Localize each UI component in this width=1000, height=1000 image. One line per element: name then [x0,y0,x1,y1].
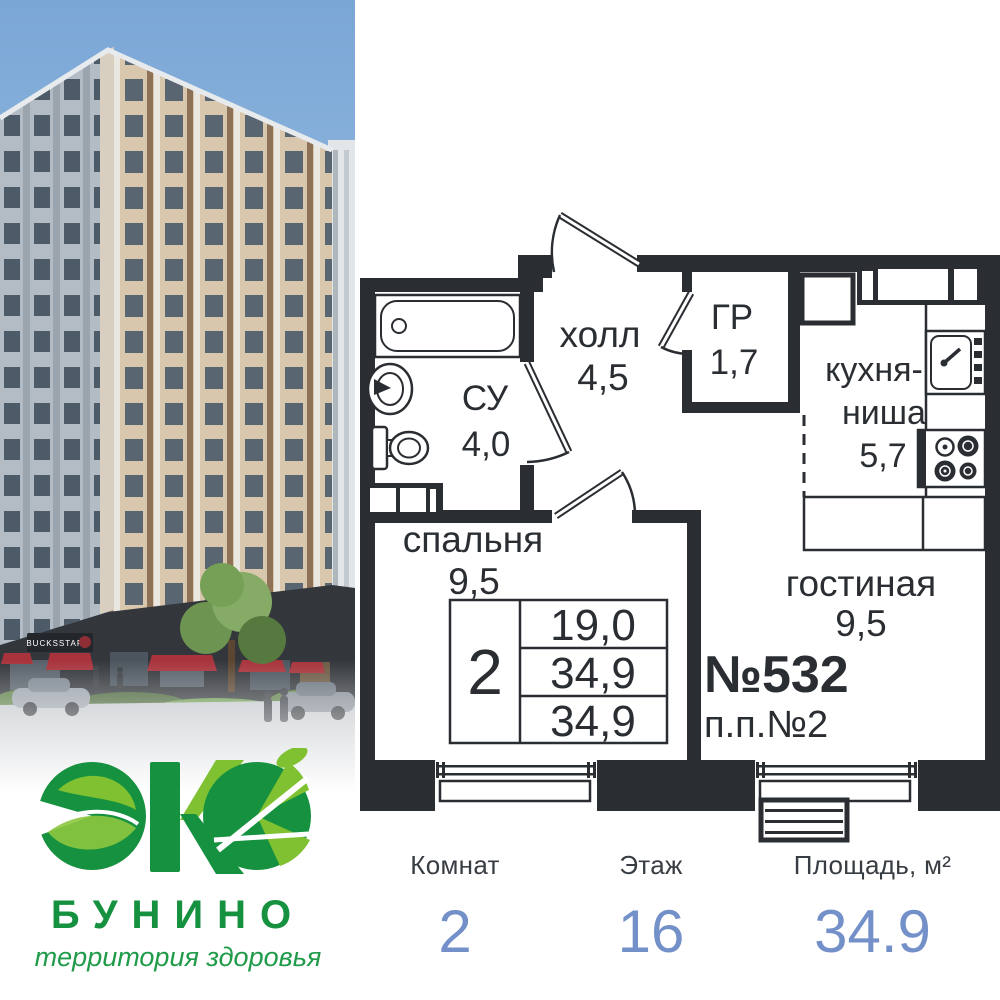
brand-name: БУНИНО [51,893,305,937]
stamp-area: 34,9 [550,649,636,698]
stamp-living-area: 19,0 [550,601,636,650]
toilet-icon [372,427,428,469]
stat-area-value: 34.9 [770,897,975,966]
stat-floor-label: Этаж [556,850,746,881]
room-area-hall: 4,5 [577,357,628,398]
stat-floor-value: 16 [556,897,746,966]
room-label-kitchen-2: ниша [842,394,926,432]
background-building [328,140,355,610]
brand-logo: БУНИНО территория здоровья [18,748,338,988]
storefront-sign: BUCKSSTAR [26,633,93,652]
vent-shaft [802,275,853,323]
stat-rooms-label: Комнат [360,850,550,881]
stamp-rooms: 2 [467,636,503,708]
building-photo: BUCKSSTAR [0,0,355,815]
stamp-table: 2 19,0 34,9 34,9 [450,600,667,746]
room-label-wardrobe: ГР [711,298,753,337]
room-label-bathroom: СУ [462,379,509,418]
room-label-hall: холл [559,314,640,355]
apartment-number: №532 [704,646,849,704]
apartment-stats: Комнат 2 Этаж 16 Площадь, м² 34.9 [360,850,1000,1000]
bathroom-door [527,363,569,462]
tower [0,47,332,645]
room-area-wardrobe: 1,7 [710,343,759,382]
room-label-living: гостиная [786,563,936,604]
room-area-living: 9,5 [835,603,886,644]
bedroom-door [556,472,635,516]
room-area-bedroom: 9,5 [448,561,499,602]
eco-mark [30,748,311,874]
bedroom-window [435,760,597,811]
stat-area-label: Площадь, м² [770,850,975,881]
position-number: п.п.№2 [704,704,828,746]
wardrobe-door [661,293,692,354]
stat-area: Площадь, м² 34.9 [770,850,975,966]
bathtub-icon [375,295,520,357]
brand-tagline: территория здоровья [35,942,322,972]
stat-rooms-value: 2 [360,897,550,966]
room-area-kitchen: 5,7 [859,437,906,475]
floor-plan: холл 4,5 ГР 1,7 кухня- ниша 5,7 СУ 4,0 с… [360,195,1000,845]
stove-icon [918,430,985,487]
apartment-card[interactable]: BUCKSSTAR [0,0,1000,1000]
stat-rooms: Комнат 2 [360,850,550,966]
stat-floor: Этаж 16 [556,850,746,966]
room-label-kitchen-1: кухня- [825,351,923,389]
balcony [761,800,847,840]
room-area-bathroom: 4,0 [462,425,511,464]
bath-sink-icon [368,364,412,414]
storefront-sign-text: BUCKSSTAR [26,639,83,648]
entrance-door [552,215,639,272]
room-label-bedroom: спальня [403,519,543,560]
stamp-total-area: 34,9 [550,697,636,746]
kitchen-sink-icon [926,331,985,394]
